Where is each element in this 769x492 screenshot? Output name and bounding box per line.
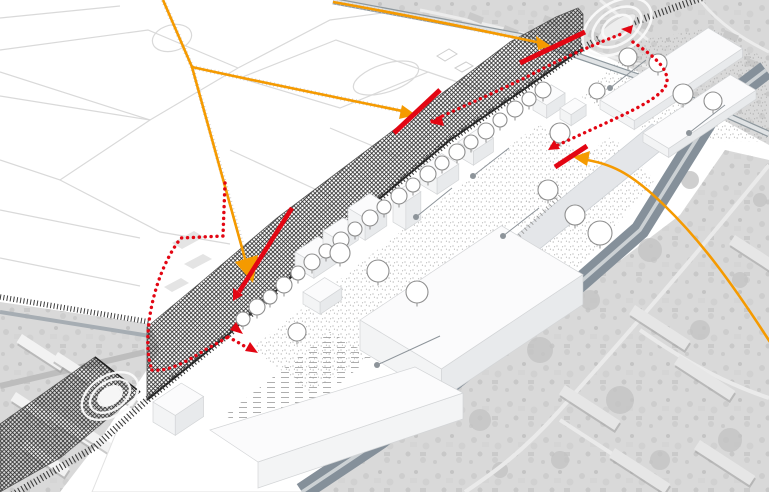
tree-icon	[464, 135, 478, 149]
diagram-canvas	[0, 0, 769, 492]
aerial-tree-blob	[527, 337, 553, 363]
tree-icon	[367, 260, 389, 282]
tree-icon	[291, 266, 305, 280]
leader-dot-icon	[470, 173, 476, 179]
aerial-tree-blob	[606, 386, 634, 414]
tree-icon	[249, 299, 265, 315]
tree-icon	[420, 166, 436, 182]
aerial-tree-blob	[718, 428, 742, 452]
tree-icon	[507, 101, 523, 117]
leader-dot-icon	[607, 85, 613, 91]
tree-icon	[391, 188, 407, 204]
aerial-tree-blob	[732, 272, 748, 288]
tree-icon	[538, 180, 558, 200]
tree-icon	[478, 123, 494, 139]
tree-icon	[522, 92, 536, 106]
tree-icon	[435, 156, 449, 170]
tree-icon	[535, 82, 551, 98]
tree-icon	[673, 84, 693, 104]
tree-icon	[348, 222, 362, 236]
tree-icon	[288, 323, 306, 341]
tree-icon	[377, 200, 391, 214]
aerial-tree-blob	[753, 193, 767, 207]
tree-icon	[588, 221, 612, 245]
tree-icon	[263, 290, 277, 304]
aerial-tree-blob	[469, 409, 491, 431]
tree-icon	[236, 312, 250, 326]
tree-icon	[304, 254, 320, 270]
tree-icon	[449, 144, 465, 160]
tree-icon	[619, 48, 637, 66]
tree-icon	[589, 83, 605, 99]
tree-icon	[276, 277, 292, 293]
aerial-tree-blob	[650, 450, 670, 470]
tree-icon	[493, 113, 507, 127]
tree-icon	[330, 243, 350, 263]
tree-icon	[406, 178, 420, 192]
leader-dot-icon	[500, 233, 506, 239]
aerial-tree-blob	[638, 238, 662, 262]
leader-dot-icon	[686, 130, 692, 136]
tree-icon	[704, 92, 722, 110]
leader-dot-icon	[374, 362, 380, 368]
tree-icon	[406, 281, 428, 303]
tree-icon	[362, 210, 378, 226]
aerial-tree-blob	[690, 320, 710, 340]
leader-dot-icon	[413, 214, 419, 220]
site-diagram-svg	[0, 0, 769, 492]
tree-icon	[565, 205, 585, 225]
aerial-tree-blob	[551, 451, 569, 469]
